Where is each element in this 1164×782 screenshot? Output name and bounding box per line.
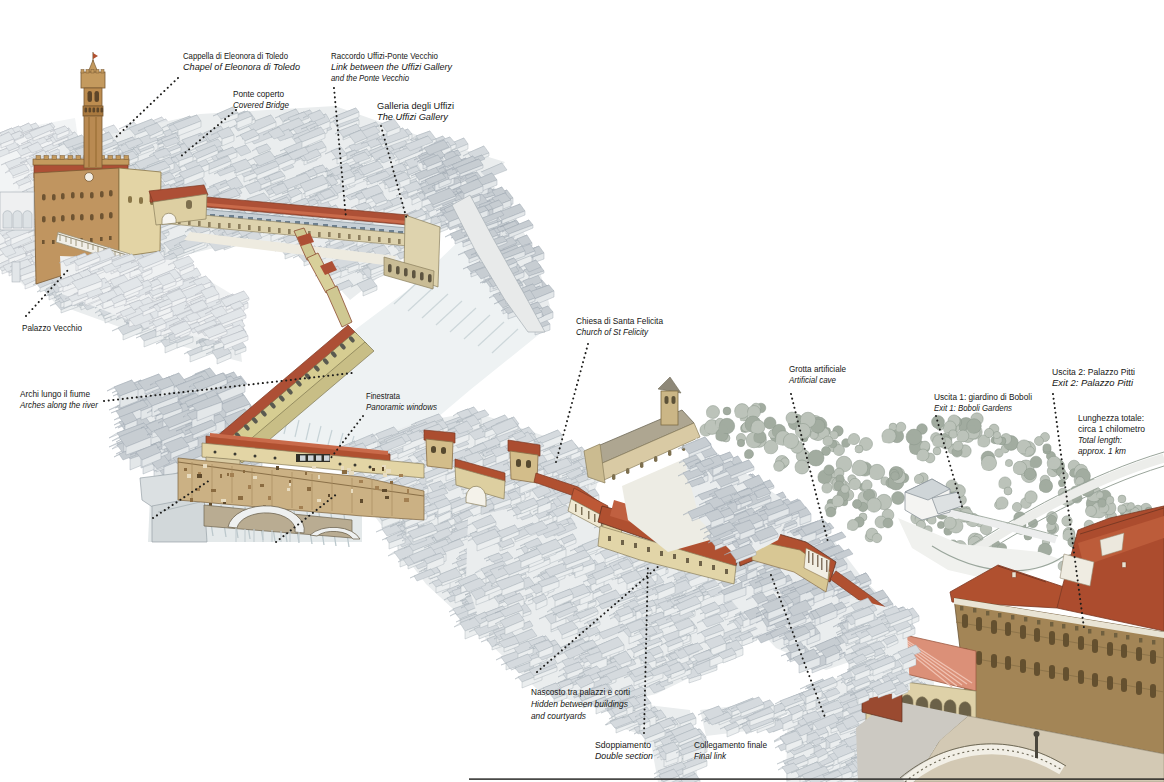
svg-text:Chiesa di Santa Felicita: Chiesa di Santa Felicita xyxy=(576,316,664,326)
svg-text:Double section: Double section xyxy=(595,751,653,761)
svg-text:Arches along the river: Arches along the river xyxy=(19,400,99,410)
svg-text:Church of St Felicity: Church of St Felicity xyxy=(576,327,649,337)
svg-text:Link between the Uffizi Galler: Link between the Uffizi Gallery xyxy=(331,62,453,72)
svg-text:Uscita 1: giardino di Boboli: Uscita 1: giardino di Boboli xyxy=(934,392,1032,402)
svg-text:The Uffizi Gallery: The Uffizi Gallery xyxy=(377,112,449,122)
svg-text:Ponte coperto: Ponte coperto xyxy=(233,89,284,99)
svg-text:Collegamento finale: Collegamento finale xyxy=(694,740,767,750)
svg-text:Raccordo Uffizi-Ponte Vecchio: Raccordo Uffizi-Ponte Vecchio xyxy=(331,51,438,61)
svg-text:Lunghezza totale:: Lunghezza totale: xyxy=(1078,413,1144,423)
svg-text:Covered Bridge: Covered Bridge xyxy=(233,100,289,110)
svg-text:Final link: Final link xyxy=(694,751,726,761)
svg-text:Total length:: Total length: xyxy=(1078,435,1122,445)
svg-text:Exit 2: Palazzo Pitti: Exit 2: Palazzo Pitti xyxy=(1052,378,1134,388)
svg-text:Artificial cave: Artificial cave xyxy=(788,375,836,385)
svg-text:Chapel of Eleonora di Toledo: Chapel of Eleonora di Toledo xyxy=(183,62,300,72)
svg-text:Uscita 2: Palazzo Pitti: Uscita 2: Palazzo Pitti xyxy=(1052,367,1135,377)
svg-text:Hidden between buildings: Hidden between buildings xyxy=(531,699,628,709)
svg-text:approx. 1 km: approx. 1 km xyxy=(1078,446,1126,456)
svg-text:Cappella di Eleonora di Toledo: Cappella di Eleonora di Toledo xyxy=(183,51,288,61)
svg-text:Panoramic windows: Panoramic windows xyxy=(366,402,437,412)
svg-text:Grotta artificiale: Grotta artificiale xyxy=(789,364,846,374)
svg-text:Palazzo Vecchio: Palazzo Vecchio xyxy=(22,323,82,333)
svg-text:Nascosto tra palazzi e corti: Nascosto tra palazzi e corti xyxy=(531,687,630,697)
svg-text:Galleria degli Uffizi: Galleria degli Uffizi xyxy=(377,101,454,111)
svg-text:Finestrata: Finestrata xyxy=(366,391,401,401)
svg-text:and the Ponte Vecchio: and the Ponte Vecchio xyxy=(331,73,409,83)
svg-text:and courtyards: and courtyards xyxy=(531,711,586,721)
svg-text:circa 1 chilometro: circa 1 chilometro xyxy=(1078,424,1145,434)
svg-text:Sdoppiamento: Sdoppiamento xyxy=(595,740,651,750)
svg-text:Archi lungo il fiume: Archi lungo il fiume xyxy=(20,389,90,399)
svg-text:Exit 1: Boboli Gardens: Exit 1: Boboli Gardens xyxy=(934,403,1012,413)
